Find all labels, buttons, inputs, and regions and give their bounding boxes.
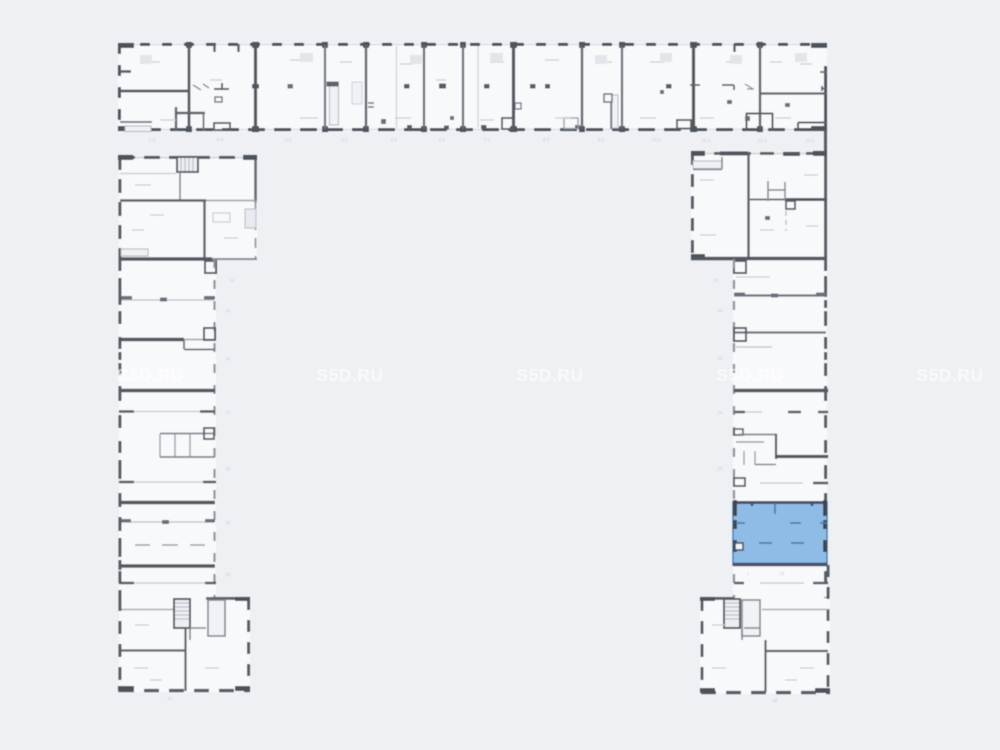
svg-text:19: 19 bbox=[225, 520, 231, 525]
svg-text:10-2: 10-2 bbox=[651, 137, 661, 142]
svg-text:12-3: 12-3 bbox=[757, 138, 767, 143]
svg-text:18: 18 bbox=[225, 466, 231, 471]
svg-text:S5D.RU: S5D.RU bbox=[916, 365, 983, 385]
svg-text:4-2: 4-2 bbox=[341, 137, 348, 142]
svg-text:5-2: 5-2 bbox=[391, 137, 398, 142]
svg-text:6-2: 6-2 bbox=[439, 137, 446, 142]
svg-text:24: 24 bbox=[717, 410, 723, 415]
svg-text:28: 28 bbox=[772, 698, 778, 703]
svg-text:3-4: 3-4 bbox=[285, 137, 292, 142]
svg-text:11-2: 11-2 bbox=[702, 138, 711, 143]
svg-text:8-3: 8-3 bbox=[543, 137, 550, 142]
svg-text:14: 14 bbox=[229, 278, 235, 283]
svg-text:16: 16 bbox=[225, 356, 231, 361]
svg-text:23: 23 bbox=[717, 466, 723, 471]
svg-text:22: 22 bbox=[779, 571, 785, 576]
svg-text:15: 15 bbox=[225, 308, 231, 313]
svg-text:13-2: 13-2 bbox=[805, 138, 815, 143]
svg-text:9-2: 9-2 bbox=[598, 137, 605, 142]
svg-text:20: 20 bbox=[225, 572, 231, 577]
svg-text:S5D.RU: S5D.RU bbox=[116, 365, 183, 385]
svg-text:S5D.RU: S5D.RU bbox=[516, 365, 583, 385]
svg-text:S5D.RU: S5D.RU bbox=[716, 365, 783, 385]
svg-text:1-4: 1-4 bbox=[149, 137, 156, 142]
svg-text:25: 25 bbox=[717, 356, 723, 361]
svg-text:26: 26 bbox=[717, 308, 723, 313]
svg-text:S5D.RU: S5D.RU bbox=[316, 365, 383, 385]
svg-text:27: 27 bbox=[713, 278, 719, 283]
svg-text:2-4: 2-4 bbox=[217, 137, 224, 142]
svg-text:7-2: 7-2 bbox=[484, 137, 491, 142]
svg-text:17: 17 bbox=[225, 410, 231, 415]
svg-text:21: 21 bbox=[167, 696, 173, 701]
